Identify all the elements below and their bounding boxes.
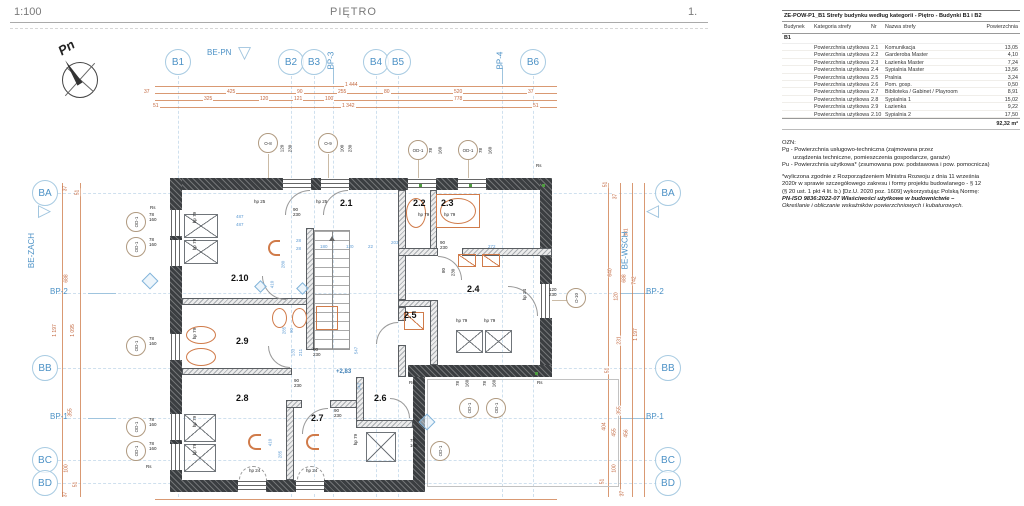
annotation-label: 78 <box>455 381 460 386</box>
grid-tick <box>502 68 503 84</box>
interior-dimension: 133 <box>290 349 295 357</box>
dimension-label: 120 <box>615 291 620 301</box>
area-table-row-cell: Sypialnia Master <box>885 67 924 73</box>
opening-tag: O-8 <box>258 133 278 153</box>
partition-wall <box>398 300 434 307</box>
partition-wall <box>330 400 362 408</box>
grid-bubble: B1 <box>165 49 191 75</box>
door-swing-arc <box>262 276 286 300</box>
area-table-row-cell: Powierzchnia użytkowa <box>814 60 869 66</box>
opening-tag: OD-1 <box>430 441 450 461</box>
marker-dot <box>419 184 422 187</box>
fixture <box>456 330 483 353</box>
interior-dimension: 22 <box>368 244 373 249</box>
area-table-row-cell: 2.4 <box>871 67 878 73</box>
dimension-label: 100 <box>324 97 334 102</box>
area-table-row: Powierzchnia użytkowa2.5Pralnia3,24 <box>782 74 1020 81</box>
fixture <box>306 434 319 450</box>
page-number: 1. <box>688 6 697 18</box>
opening-tag: OD-1 <box>459 398 479 418</box>
header-rule <box>10 22 708 23</box>
door-swing-arc <box>297 466 325 480</box>
grid-bubble: BA <box>655 180 681 206</box>
dimension-label: 37 <box>63 491 68 499</box>
grid-line <box>502 76 503 497</box>
header-dashed-rule <box>10 28 708 29</box>
wall-type-marker <box>419 414 436 431</box>
dimension-label: 51 <box>75 189 80 197</box>
annotation-label: 230 <box>287 145 292 153</box>
window <box>296 480 324 492</box>
area-table-row-cell: Powierzchnia użytkowa <box>814 67 869 73</box>
dimension-label: 100 <box>613 463 618 473</box>
fixture <box>440 198 476 224</box>
opening-tag: OD-1 <box>486 398 506 418</box>
room-number: 2.6 <box>374 393 387 403</box>
window <box>321 178 349 190</box>
dimension-label: 1 342 <box>341 104 356 109</box>
annotation-label: hp 25 <box>254 199 265 204</box>
fixture <box>482 254 500 267</box>
door-swing-arc <box>438 256 462 280</box>
grid-bubble: BB <box>655 355 681 381</box>
north-label: Pn <box>55 37 77 59</box>
opening-tag: O-10 <box>566 288 586 308</box>
area-table-row: Powierzchnia użytkowa2.3Łazienka Master7… <box>782 59 1020 66</box>
grid-line <box>58 483 662 484</box>
dimension-label: 688 <box>623 273 628 283</box>
interior-dimension: 211 <box>298 349 303 356</box>
marker-dot <box>542 184 545 187</box>
annotation-label: hp 79 <box>456 318 467 323</box>
interior-dimension: 28 <box>296 238 301 243</box>
col-nazwa: Nazwa strefy <box>885 24 916 30</box>
opening-tag: OD-1 <box>126 336 146 356</box>
interior-dimension: 285 <box>281 327 286 335</box>
grid-line <box>58 293 662 294</box>
room-number: 2.2 <box>413 198 426 208</box>
grid-bubble: BA <box>32 180 58 206</box>
fixture <box>366 432 396 462</box>
dimension-label: 455 <box>613 427 618 437</box>
grid-bubble: BB <box>32 355 58 381</box>
fixture <box>485 330 512 353</box>
grid-line <box>178 76 179 497</box>
dimension-label: 51 <box>152 104 160 109</box>
room-number: 2.7 <box>311 413 324 423</box>
area-table-row-cell: Łazienka <box>885 104 906 110</box>
window <box>283 178 311 190</box>
dimension-label: 37 <box>620 490 625 498</box>
grid-line <box>58 193 662 194</box>
dimension-line <box>155 93 557 94</box>
total-row: 92,32 m² <box>782 118 1020 130</box>
room-number: 2.10 <box>231 273 249 283</box>
annotation-label: hp 24 <box>522 289 527 300</box>
opening-tag: OD-1 <box>458 140 478 160</box>
fixture <box>184 214 218 238</box>
table-rows: Powierzchnia użytkowa2.1Komunikacja13,05… <box>782 44 1020 118</box>
opening-tag: OD-1 <box>126 212 146 232</box>
interior-dimension: 410 <box>267 439 272 447</box>
area-table-row-cell: 17,50 <box>1005 112 1018 118</box>
area-table-row-cell: 2.8 <box>871 97 878 103</box>
stairs-center-line <box>332 231 333 349</box>
area-schedule-panel: ZE-POW-P1_B1 Strefy budynku według kateg… <box>782 10 1020 211</box>
grid-bubble: BC <box>32 447 58 473</box>
legend-line: 2020r w sprawie szczegółowego zakresu i … <box>782 181 1020 188</box>
dimension-label: 37 <box>527 90 535 95</box>
grid-label: BP-2 <box>646 287 664 296</box>
annotation-label: hp 79 <box>192 212 197 223</box>
annotation-label: hp 79 <box>192 416 197 427</box>
grid-line <box>58 368 662 369</box>
col-powierzchnia: Powierzchnia <box>986 24 1018 30</box>
partition-wall <box>398 248 438 256</box>
dimension-label: 325 <box>203 97 213 102</box>
area-table-row: Powierzchnia użytkowa2.2Garderoba Master… <box>782 51 1020 58</box>
area-table-row-cell: Biblioteka / Gabinet / Playroom <box>885 89 958 95</box>
leader-line <box>468 160 469 178</box>
area-table-row-cell: 9,22 <box>1008 104 1018 110</box>
legend-line: OZN: <box>782 140 1020 147</box>
legend-block: OZN:Pg - Powierzchnia usługowo-techniczn… <box>782 140 1020 211</box>
interior-dimension: 487 <box>236 222 244 227</box>
area-table-row-cell: Powierzchnia użytkowa <box>814 112 869 118</box>
legend-line: Określanie i obliczanie wskaźników powie… <box>782 203 1020 210</box>
annotation-label: 160 <box>464 380 469 388</box>
wall-type-marker <box>254 280 267 293</box>
marker-dot <box>535 372 538 375</box>
door-swing-arc <box>508 286 538 316</box>
dimension-label: 51 <box>532 104 540 109</box>
annotation-label: 160 <box>437 147 442 155</box>
grid-line <box>376 76 377 497</box>
legend-line: (§ 20 ust. 1 pkt 4 lit. b.) [Dz.U. 2020 … <box>782 189 1020 196</box>
dimension-label: 120 <box>259 97 269 102</box>
window <box>170 444 182 470</box>
table-header: Budynek Kategoria strefy Nr Nazwa strefy… <box>782 22 1020 34</box>
fixture <box>184 414 216 442</box>
dimension-label: 1 197 <box>53 323 58 338</box>
annotation-label: 78 160 <box>149 336 157 346</box>
annotation-label: 90 230 <box>293 207 301 217</box>
grid-line <box>58 418 662 419</box>
fixture <box>272 308 287 328</box>
wall-type-marker <box>142 273 159 290</box>
area-table-row: Powierzchnia użytkowa2.8Sypialnia 115,02 <box>782 96 1020 103</box>
door-swing-arc <box>390 398 410 418</box>
leader-line <box>418 160 419 178</box>
grid-tick <box>333 68 334 84</box>
door-swing-arc <box>323 190 348 215</box>
grid-tick <box>620 293 648 294</box>
dimension-label: 37 <box>613 193 618 201</box>
area-table-row-cell: Powierzchnia użytkowa <box>814 97 869 103</box>
annotation-label: hp 79 <box>484 318 495 323</box>
area-table-row-cell: Pom. gosp. <box>885 82 912 88</box>
grid-label: ▷ <box>38 202 51 220</box>
window <box>170 240 182 266</box>
wall <box>170 480 425 492</box>
area-table-row: Powierzchnia użytkowa2.1Komunikacja13,05 <box>782 44 1020 51</box>
partition-wall <box>306 228 314 350</box>
area-table-row-cell: 2.1 <box>871 45 878 51</box>
annotation-label: hp 24 <box>249 468 260 473</box>
area-table-row: Powierzchnia użytkowa2.4Sypialnia Master… <box>782 66 1020 73</box>
partition-wall <box>182 368 292 375</box>
annotation-label: 160 <box>491 380 496 388</box>
fixture <box>436 194 480 228</box>
grid-line <box>533 76 534 497</box>
leader-line <box>268 154 269 178</box>
area-table-row-cell: Powierzchnia użytkowa <box>814 52 869 58</box>
fixture <box>186 326 216 344</box>
marker-dot <box>469 184 472 187</box>
door-swing-arc <box>302 408 328 434</box>
dimension-label: 51 <box>600 478 605 486</box>
grid-bubble: B4 <box>363 49 389 75</box>
interior-dimension: 142 <box>356 383 361 391</box>
annotation-label: hp 24 <box>306 468 317 473</box>
area-table-row-cell: Garderoba Master <box>885 52 928 58</box>
area-table-row: Powierzchnia użytkowa2.9Łazienka9,22 <box>782 103 1020 110</box>
opening-tag: OD-1 <box>126 237 146 257</box>
window <box>170 414 182 440</box>
dimension-label: 255 <box>337 90 347 95</box>
wall-type-marker <box>296 282 309 295</box>
annotation-label: 78 <box>478 148 483 153</box>
wall <box>413 377 425 492</box>
interior-dimension: 28 <box>296 246 301 251</box>
annotation-label: hp 79 <box>192 328 197 339</box>
fixture <box>186 348 216 366</box>
area-table-row-cell: 2.7 <box>871 89 878 95</box>
dimension-line <box>62 183 63 497</box>
partition-wall <box>356 377 364 428</box>
legend-line: Pg - Powierzchnia usługowo-techniczna (z… <box>782 147 1020 154</box>
annotation-label: Rs <box>537 380 543 385</box>
annotation-label: 78 160 <box>410 438 418 448</box>
partition-wall <box>430 300 438 365</box>
area-table-row: Powierzchnia użytkowa2.10Sypialnia 217,5… <box>782 111 1020 118</box>
annotation-label: hp 79 <box>192 239 197 250</box>
grid-bubble: B6 <box>520 49 546 75</box>
window <box>170 210 182 236</box>
grid-label: BP-2 <box>50 287 68 296</box>
stairs <box>314 230 350 350</box>
interior-dimension: 487 <box>236 214 244 219</box>
partition-wall <box>398 345 406 377</box>
grid-label: BE-ZACH <box>27 233 36 268</box>
dimension-label: 456 <box>625 428 630 438</box>
opening-tag: O-9 <box>318 133 338 153</box>
legend-line: Pu - Powierzchnia użytkowa* (zsumowana p… <box>782 162 1020 169</box>
wall <box>427 379 619 487</box>
dimension-label: 381 <box>625 227 630 237</box>
grid-bubble: B2 <box>278 49 304 75</box>
annotation-label: Rs <box>150 205 156 210</box>
area-table-row-cell: Sypialnia 1 <box>885 97 911 103</box>
room-number: 2.4 <box>467 284 480 294</box>
area-table-row-cell: Powierzchnia użytkowa <box>814 89 869 95</box>
grid-tick <box>88 418 116 419</box>
dimension-line <box>155 107 557 108</box>
table-title: ZE-POW-P1_B1 Strefy budynku według kateg… <box>782 10 1020 22</box>
grid-line <box>291 76 292 497</box>
dimension-line <box>80 183 81 497</box>
dimension-label: 520 <box>453 90 463 95</box>
area-table-row-cell: 2.10 <box>871 112 881 118</box>
fixture <box>184 444 216 472</box>
annotation-label: Rs <box>146 464 152 469</box>
annotation-label: 78 160 <box>149 212 157 222</box>
partition-wall <box>356 420 413 428</box>
annotation-label: 78 <box>482 381 487 386</box>
annotation-label: hp 79 <box>444 212 455 217</box>
interior-dimension: 272 <box>488 244 496 249</box>
annotation-label: 90 230 <box>294 378 302 388</box>
wall <box>170 178 552 190</box>
annotation-label: hp 79 <box>418 212 429 217</box>
annotation-label: 120 <box>279 145 284 153</box>
room-number: 2.8 <box>236 393 249 403</box>
dimension-label: 688 <box>65 273 70 283</box>
interior-dimension: 410 <box>269 281 274 289</box>
dimension-line <box>632 183 633 497</box>
fixture <box>268 240 280 256</box>
fixture <box>184 240 218 264</box>
partition-wall <box>462 248 552 256</box>
grid-bubble: B3 <box>301 49 327 75</box>
legend-line: urządzenia techniczne, pomieszczenia gos… <box>782 155 1020 162</box>
room-number: 2.3 <box>441 198 454 208</box>
annotation-label: 160 <box>487 147 492 155</box>
door-swing-arc <box>239 466 267 480</box>
dimension-label: 231 <box>618 335 623 345</box>
grid-bubble: B5 <box>385 49 411 75</box>
area-table-row-cell: Łazienka Master <box>885 60 924 66</box>
opening-tag: OD-1 <box>408 140 428 160</box>
legend-line: PN-ISO 9836:2022-07 Właściwości użytkowe… <box>782 196 1020 203</box>
door-swing-arc <box>285 190 310 215</box>
drawing-sheet: { "header":{"scale":"1:100","title":"PIĘ… <box>0 0 1024 506</box>
room-number: 2.9 <box>236 336 249 346</box>
dimension-label: 1 095 <box>71 323 76 338</box>
area-table-row-cell: 2.2 <box>871 52 878 58</box>
window <box>540 284 552 318</box>
dimension-label: 355 <box>69 407 74 417</box>
partition-wall <box>398 307 406 321</box>
room-number: 2.5 <box>404 310 417 320</box>
area-table-row-cell: 0,50 <box>1008 82 1018 88</box>
dimension-label: 1 444 <box>344 83 359 88</box>
annotation-label: 90 230 <box>334 408 342 418</box>
partition-wall <box>182 298 312 305</box>
annotation-label: 80 <box>441 268 446 273</box>
interior-dimension: 90 <box>289 328 294 333</box>
dimension-line <box>155 499 557 500</box>
annotation-label: hp 25 <box>316 199 327 204</box>
area-table-row-cell: 8,91 <box>1008 89 1018 95</box>
area-table-row-cell: 7,24 <box>1008 60 1018 66</box>
opening-tag: OD-1 <box>126 441 146 461</box>
scale-label: 1:100 <box>14 6 42 18</box>
fixture <box>292 308 307 328</box>
partition-wall <box>398 190 406 300</box>
annotation-label: Rs <box>409 380 415 385</box>
room-number: 2.1 <box>340 198 353 208</box>
north-compass: Pn <box>56 44 110 102</box>
annotation-label: 90 230 <box>440 240 448 250</box>
dimension-label: 425 <box>226 90 236 95</box>
fixture <box>404 312 424 330</box>
annotation-label: 120 230 <box>549 287 557 297</box>
dimension-label: 37 <box>63 185 68 193</box>
grid-tick <box>88 293 116 294</box>
area-table-row: Powierzchnia użytkowa2.7Biblioteka / Gab… <box>782 88 1020 95</box>
window <box>170 334 182 360</box>
dimension-label: 37 <box>143 90 151 95</box>
fixture <box>248 434 261 450</box>
building-row: B1 <box>782 34 1020 44</box>
window <box>458 178 486 190</box>
dimension-label: 640 <box>609 267 614 277</box>
area-table-row-cell: 4,10 <box>1008 52 1018 58</box>
area-table-row-cell: Powierzchnia użytkowa <box>814 45 869 51</box>
door-swing-arc <box>376 322 398 344</box>
grid-label: ▽ <box>238 44 251 62</box>
legend-line: *wyliczona zgodnie z Rozporządzeniem Min… <box>782 174 1020 181</box>
interior-dimension: 285 <box>277 451 282 459</box>
annotation-label: hp 79 <box>353 434 358 445</box>
area-table-row-cell: 2.3 <box>871 60 878 66</box>
area-table-row-cell: 13,56 <box>1005 67 1018 73</box>
dimension-label: 355 <box>618 405 623 415</box>
grid-label: BP-3 <box>326 52 335 70</box>
grid-line <box>398 76 399 497</box>
stairs-up-arrow-icon <box>329 233 335 241</box>
grid-label: BP-4 <box>495 52 504 70</box>
area-table-row: Powierzchnia użytkowa2.6Pom. gosp.0,50 <box>782 81 1020 88</box>
area-table-row-cell: 15,02 <box>1005 97 1018 103</box>
annotation-label: 78 160 <box>149 237 157 247</box>
annotation-label: 78 160 <box>149 441 157 451</box>
leader-line <box>552 300 568 301</box>
dimension-line <box>155 100 557 101</box>
area-table-row-cell: Sypialnia 2 <box>885 112 911 118</box>
area-table-row-cell: 2.6 <box>871 82 878 88</box>
col-nr: Nr <box>871 24 877 30</box>
dimension-label: 1 197 <box>634 327 639 342</box>
leader-line <box>328 154 329 178</box>
dimension-line <box>620 183 621 497</box>
grid-bubble: BD <box>655 470 681 496</box>
partition-wall <box>286 400 294 480</box>
dimension-label: 51 <box>605 367 610 375</box>
annotation-label: hp 79 <box>192 444 197 455</box>
area-table-row-cell: Powierzchnia użytkowa <box>814 75 869 81</box>
interior-dimension: 547 <box>353 347 358 355</box>
dimension-label: 742 <box>633 275 638 285</box>
annotation-label: 100 <box>339 145 344 153</box>
dimension-label: 404 <box>603 421 608 431</box>
wall <box>408 365 552 377</box>
grid-label: BP-1 <box>50 412 68 421</box>
area-table-row-cell: Pralnia <box>885 75 902 81</box>
dimension-line <box>155 86 557 87</box>
grid-bubble: BC <box>655 447 681 473</box>
